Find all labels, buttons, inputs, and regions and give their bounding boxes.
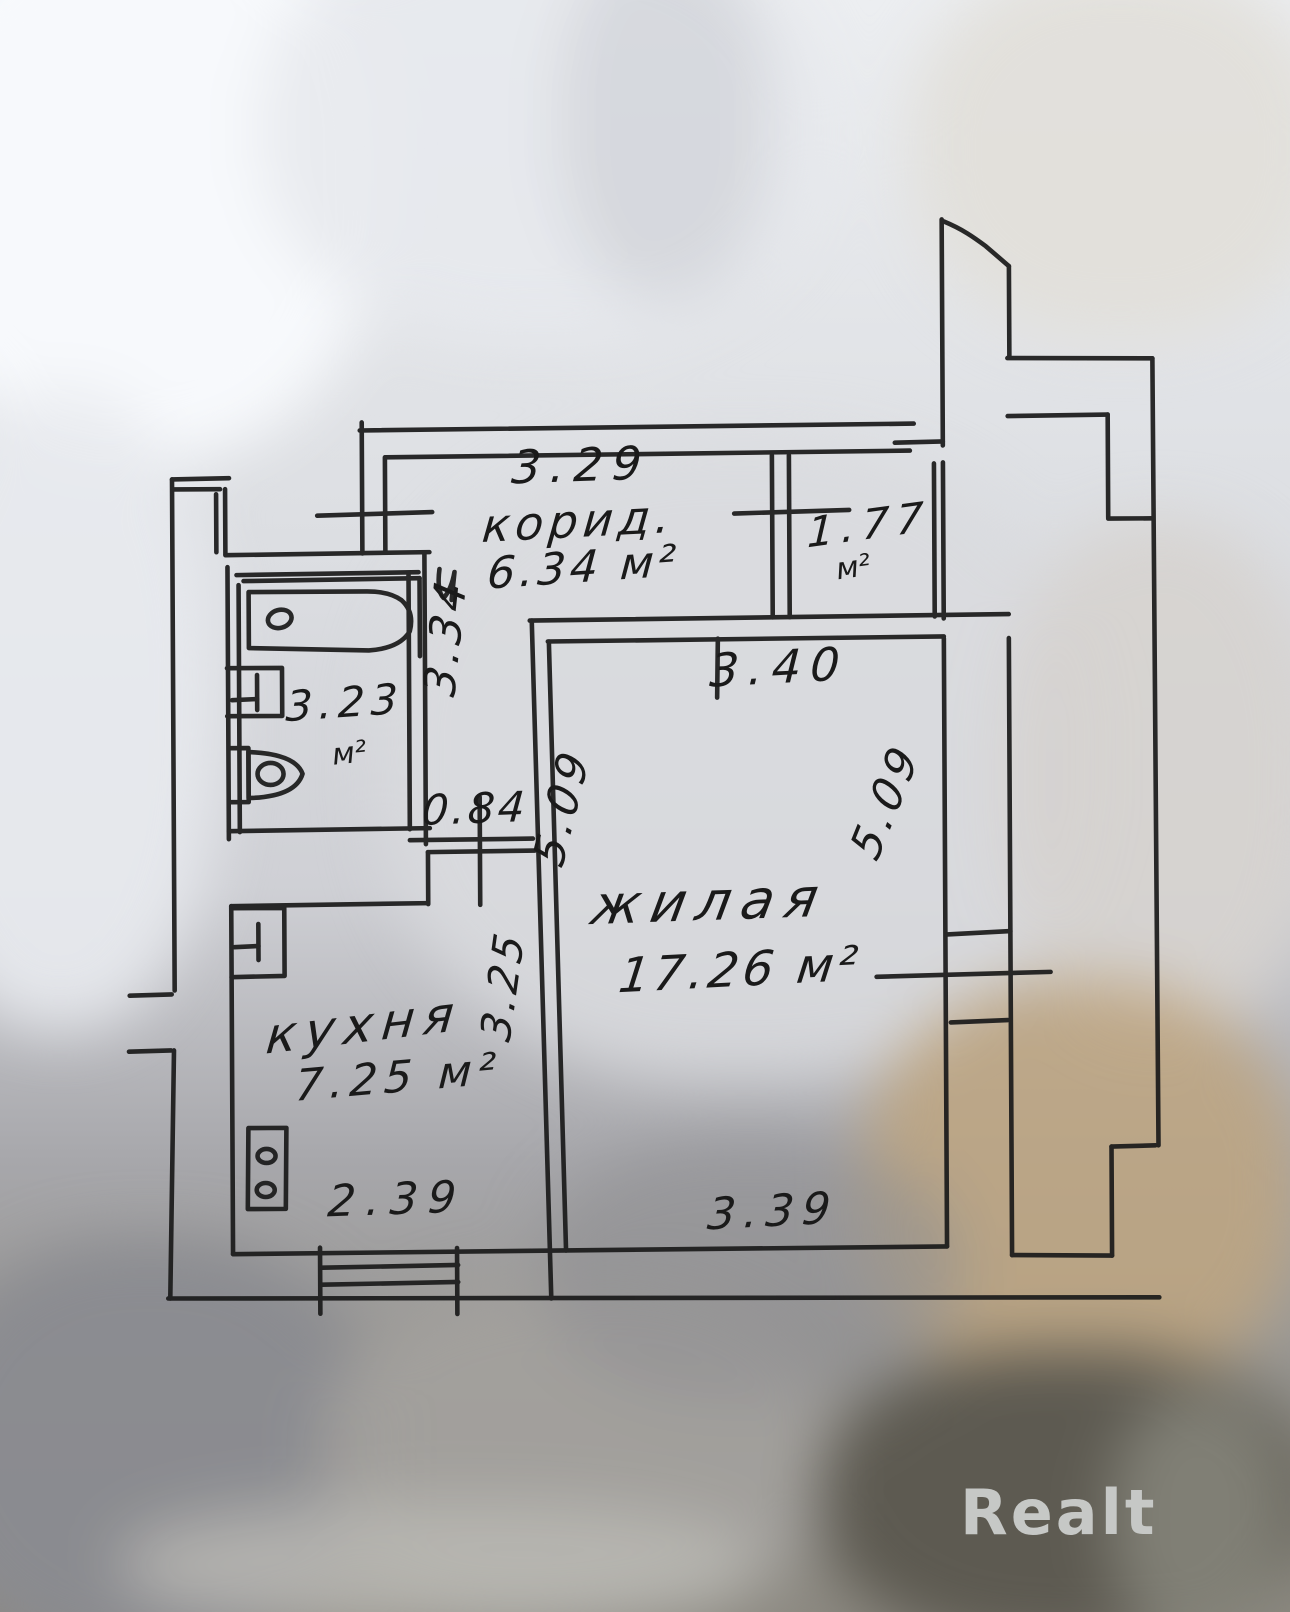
closet-unit-label: м²: [834, 548, 873, 587]
stove-icon: [247, 1128, 286, 1209]
living-bottom-width-label: 3.39: [705, 1183, 840, 1241]
bathtub-icon: [244, 578, 420, 657]
bathroom-area-label: 3.23: [285, 674, 405, 731]
floorplan-drawing: [0, 0, 1290, 1612]
balcony-outline: [894, 218, 1159, 1146]
realt-watermark: Realt: [960, 1476, 1158, 1549]
walls: [125, 218, 1160, 1315]
living-top-width-label: 3.40: [708, 636, 850, 697]
window-kitchen-icon: [320, 1247, 458, 1315]
kitchen-sink-icon: [231, 908, 284, 977]
window-living-icon: [876, 931, 1050, 1023]
kitchen-bottom-width-label: 2.39: [326, 1172, 468, 1228]
floorplan-photo: 3.29 корид. 6.34 м² 1.77 м² 3.40 3.34 5.…: [0, 0, 1290, 1612]
bathroom-unit-label: м²: [330, 734, 368, 772]
entrance-door-opening: [126, 479, 176, 1298]
living-room-name-label: жилая: [587, 866, 834, 937]
bathroom-sink-icon: [227, 668, 282, 716]
door-opening-width-label: 0.84: [420, 782, 529, 835]
corridor-width-label: 3.29: [510, 436, 653, 495]
